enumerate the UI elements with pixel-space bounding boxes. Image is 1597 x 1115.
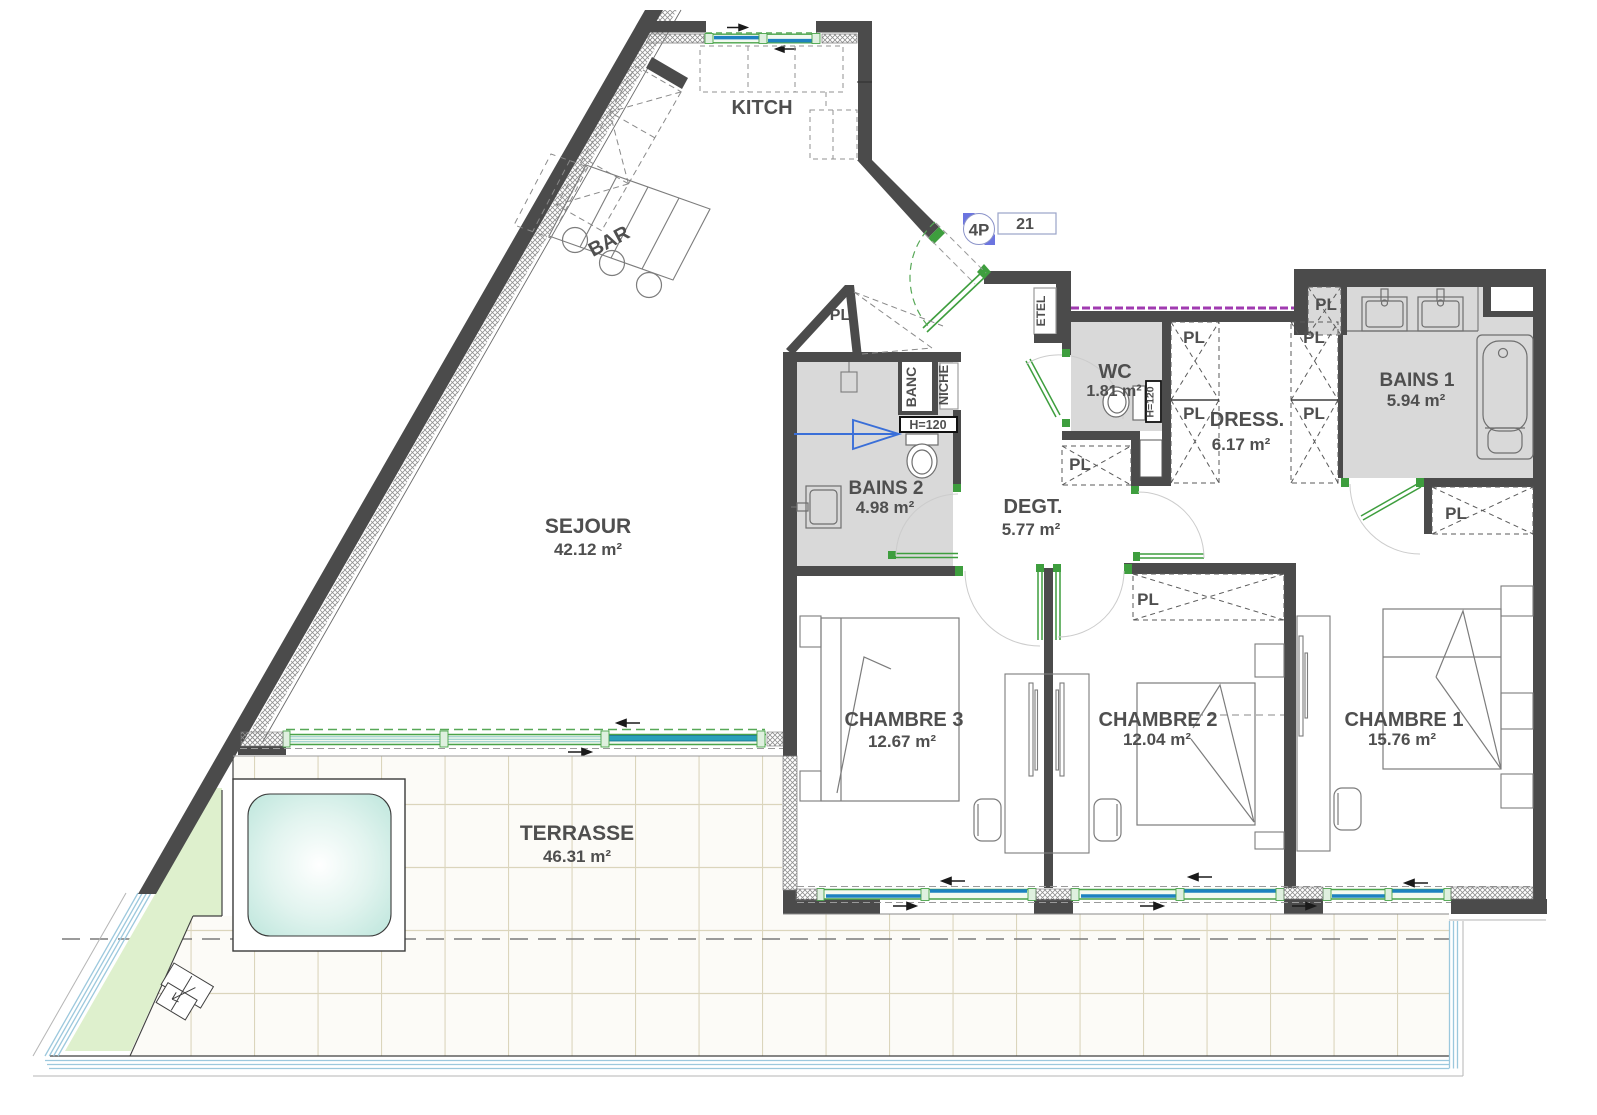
svg-text:PL: PL [1303,328,1325,347]
svg-text:PL: PL [830,307,851,324]
svg-text:PL: PL [1183,404,1205,423]
svg-text:PL: PL [1303,404,1325,423]
svg-text:5.94 m²: 5.94 m² [1387,391,1446,410]
svg-text:PL: PL [1445,504,1467,523]
svg-text:CHAMBRE 1: CHAMBRE 1 [1345,709,1464,731]
svg-text:4.98 m²: 4.98 m² [856,498,915,517]
svg-text:PL: PL [1137,590,1159,609]
svg-text:CHAMBRE 3: CHAMBRE 3 [845,709,964,731]
svg-text:12.04 m²: 12.04 m² [1123,730,1191,749]
svg-text:6.17 m²: 6.17 m² [1212,435,1271,454]
svg-text:PL: PL [1183,328,1205,347]
svg-text:TERRASSE: TERRASSE [520,822,634,845]
svg-text:15.76 m²: 15.76 m² [1368,730,1436,749]
svg-text:WC: WC [1098,361,1131,383]
svg-text:21: 21 [1016,216,1034,233]
svg-text:1.81 m²: 1.81 m² [1086,383,1141,400]
svg-text:PL: PL [1315,295,1337,314]
svg-text:DEGT.: DEGT. [1004,496,1063,518]
svg-text:NICHE: NICHE [936,364,951,405]
svg-text:42.12 m²: 42.12 m² [554,540,622,559]
svg-text:BANC: BANC [903,367,919,407]
svg-text:ETEL: ETEL [1034,296,1048,327]
svg-text:12.67 m²: 12.67 m² [868,732,936,751]
svg-text:DRESS.: DRESS. [1210,409,1284,431]
svg-text:KITCH: KITCH [731,97,792,119]
svg-text:H=120: H=120 [909,418,946,432]
svg-text:5.77 m²: 5.77 m² [1002,520,1061,539]
svg-text:46.31 m²: 46.31 m² [543,847,611,866]
svg-text:SEJOUR: SEJOUR [545,515,631,538]
svg-text:BAINS 1: BAINS 1 [1380,370,1455,391]
svg-text:BAINS 2: BAINS 2 [849,478,924,499]
svg-text:CHAMBRE 2: CHAMBRE 2 [1099,709,1218,731]
svg-text:H=120: H=120 [1145,386,1157,417]
svg-text:PL: PL [1069,455,1091,474]
svg-text:4P: 4P [969,221,990,240]
